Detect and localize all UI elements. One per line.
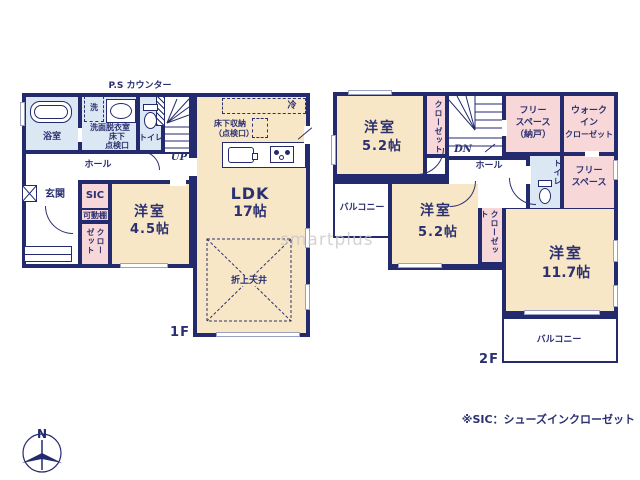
f2-freespace1-door-gap bbox=[502, 120, 507, 136]
f1-toilet-label: トイレ bbox=[138, 133, 164, 142]
sic-label: SIC bbox=[82, 190, 108, 202]
f2-closet2-label: クローゼット bbox=[485, 210, 499, 262]
f1-hall-label: ホール bbox=[80, 160, 116, 170]
f2-bedroom2-window bbox=[398, 263, 442, 268]
entrance-label: 玄関 bbox=[40, 189, 70, 201]
f1-bedroom-size: 4.5帖 bbox=[126, 223, 174, 238]
washer-label: 洗 bbox=[86, 103, 102, 112]
f1-pipe-space bbox=[156, 96, 165, 126]
wic-label-3: クローゼット bbox=[562, 130, 616, 139]
compass-n-label: N bbox=[37, 427, 47, 441]
f1-ldk-window-east2 bbox=[305, 284, 310, 310]
f1-toilet-bowl-icon bbox=[144, 112, 157, 129]
f2-bedroom3-name: 洋室 bbox=[536, 245, 596, 262]
f1-bath-door-gap bbox=[78, 128, 82, 142]
floor-storage-label-1: 床下収納 bbox=[214, 119, 254, 128]
f2-bedroom3-size: 11.7帖 bbox=[534, 265, 598, 281]
kitchen-sink-icon bbox=[228, 147, 254, 163]
freespace1-label-1: フリー bbox=[508, 106, 558, 116]
freespace1-label-3: （納戸） bbox=[508, 130, 558, 140]
f2-bedroom3-window-east1 bbox=[613, 240, 618, 262]
f2-bedroom3-window-south bbox=[524, 310, 600, 315]
f2-wic-door-gap bbox=[585, 151, 599, 157]
f1-floor-label: 1F bbox=[165, 326, 195, 341]
wic-label-2: イン bbox=[564, 118, 614, 128]
f1-bedroom-name: 洋室 bbox=[126, 204, 174, 220]
f1-hall-ldk-gap bbox=[189, 158, 197, 176]
f2-closet2-door-area bbox=[482, 184, 502, 204]
f2-bedroom1-window-left bbox=[331, 135, 336, 165]
wic-label-1: ウォーク bbox=[564, 106, 614, 116]
entrance-pillar-icon bbox=[22, 185, 37, 202]
shelf-label: 可動棚 bbox=[82, 211, 108, 220]
freespace1-label-2: スペース bbox=[508, 118, 558, 128]
f2-bedroom2-size: 5.2帖 bbox=[412, 226, 464, 241]
f1-closet-label: クローゼット bbox=[85, 228, 105, 262]
kitchen-faucet-icon bbox=[252, 153, 258, 160]
f1-bath-window bbox=[20, 102, 25, 126]
ps-counter-label: P.S カウンター bbox=[104, 81, 176, 91]
fridge-label: 冷 bbox=[282, 101, 302, 111]
ceiling-label: 折上天井 bbox=[224, 276, 274, 286]
floorplan-image: P.S カウンター 洗 冷 床下収納 （ bbox=[0, 0, 640, 480]
floor-storage-label-2: （点検口） bbox=[214, 129, 256, 138]
balcony-bottom-label: バルコニー bbox=[533, 335, 585, 345]
washroom-label: 洗面脱衣室 bbox=[85, 123, 135, 132]
hatch-label-2: 点検口 bbox=[103, 141, 131, 150]
freespace2-label-2: スペース bbox=[564, 178, 614, 188]
f1-toilet-tank-icon bbox=[143, 104, 158, 111]
balcony-left-label: バルコニー bbox=[336, 203, 388, 213]
f2-bedroom1-name: 洋室 bbox=[356, 120, 404, 136]
f2-closet1-label: クローゼット bbox=[429, 100, 443, 154]
dn-label: DN bbox=[450, 144, 476, 156]
stove-icon bbox=[270, 146, 294, 163]
f2-toilet-bowl-icon bbox=[539, 188, 551, 204]
ldk-size: 17帖 bbox=[222, 204, 278, 220]
hatch-label-1: 床下 bbox=[103, 132, 131, 141]
f2-bedroom1-window-top bbox=[348, 90, 392, 95]
f2-bedroom1-size: 5.2帖 bbox=[356, 140, 408, 155]
bath-label: 浴室 bbox=[32, 132, 72, 142]
porch-steps bbox=[24, 246, 72, 262]
watermark: smartplus bbox=[280, 230, 374, 250]
freespace2-label-1: フリー bbox=[564, 166, 614, 176]
f1-ldk-window-south bbox=[216, 332, 300, 337]
f2-floor-label: 2F bbox=[474, 353, 504, 368]
footnote: ※SIC：シューズインクローゼット bbox=[430, 414, 635, 427]
ldk-name: LDK bbox=[222, 185, 278, 203]
f1-stairs-icon bbox=[165, 97, 189, 152]
f2-freespace2-window bbox=[613, 160, 618, 180]
f2-toilet-label: トイレ bbox=[550, 159, 562, 189]
compass-icon: N bbox=[14, 420, 70, 476]
f1-bedroom-door-gap bbox=[170, 179, 186, 186]
f1-bedroom-window bbox=[120, 263, 168, 268]
f2-hall-label: ホール bbox=[471, 161, 507, 171]
washbasin-icon bbox=[110, 103, 132, 119]
f2-bedroom3-window-east2 bbox=[613, 285, 618, 307]
bathtub-icon bbox=[30, 101, 72, 123]
